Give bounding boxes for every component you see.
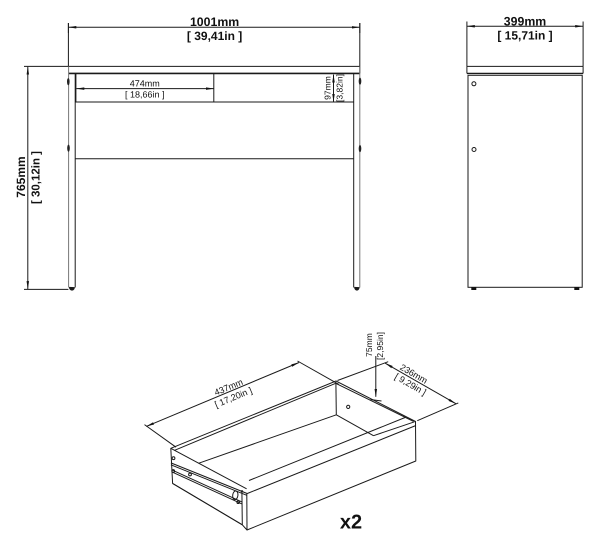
svg-text:[ 18,66in ]: [ 18,66in ] [125,90,165,100]
svg-text:1001mm: 1001mm [190,15,239,29]
svg-text:399mm: 399mm [504,15,546,29]
svg-text:[3,82in]: [3,82in] [335,74,345,102]
svg-text:765mm: 765mm [14,156,28,197]
svg-text:[ 15,71in ]: [ 15,71in ] [497,28,552,42]
svg-text:75mm: 75mm [364,333,374,357]
svg-text:474mm: 474mm [130,79,160,89]
svg-text:[ 30,12in ]: [ 30,12in ] [31,151,43,204]
svg-text:97mm: 97mm [322,76,332,100]
svg-text:[2,95in]: [2,95in] [375,332,385,360]
svg-text:[ 39,41in ]: [ 39,41in ] [187,29,242,43]
svg-text:x2: x2 [340,512,362,534]
